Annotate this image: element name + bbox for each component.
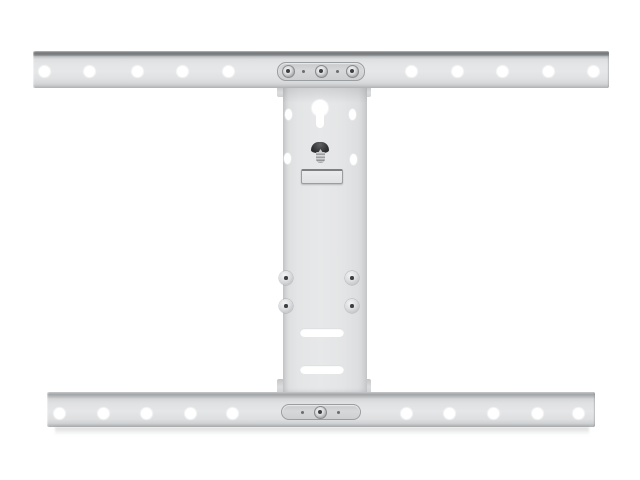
top-clamp-screw — [346, 65, 359, 78]
bottom-clamp-pin — [337, 411, 340, 414]
bottom-rail-hole — [185, 408, 196, 419]
top-clamp-pin — [302, 70, 305, 73]
top-clamp-screw — [282, 65, 295, 78]
top-rail-hole — [406, 66, 417, 77]
top-rail-hole — [497, 66, 508, 77]
top-rail-hole — [84, 66, 95, 77]
top-clamp-pin — [336, 70, 339, 73]
keyhole-slot-stem — [316, 112, 324, 128]
wall-plate — [283, 87, 367, 393]
plate-oval-hole — [350, 154, 357, 165]
bottom-rail-hole — [444, 408, 455, 419]
bottom-clamp-screw — [314, 406, 327, 419]
plate-rivet — [345, 271, 359, 285]
latch-plate — [301, 169, 343, 184]
top-rail-hole — [132, 66, 143, 77]
locking-bolt-shaft — [316, 152, 325, 163]
bottom-rail-hole — [401, 408, 412, 419]
bottom-rail-hole — [227, 408, 238, 419]
bottom-rail-hole — [141, 408, 152, 419]
bottom-rail-hole — [532, 408, 543, 419]
top-rail-hole — [543, 66, 554, 77]
product-photo-tv-wall-mount — [0, 0, 640, 480]
plate-rivet — [345, 299, 359, 313]
bottom-clamp-pin — [301, 411, 304, 414]
plate-rivet — [279, 299, 293, 313]
plate-adjustment-slot — [300, 365, 344, 374]
bottom-rail-hole — [573, 408, 584, 419]
top-rail-hole — [177, 66, 188, 77]
plate-oval-hole — [284, 153, 291, 164]
top-rail-hole — [223, 66, 234, 77]
plate-rivet — [279, 271, 293, 285]
drop-shadow — [55, 427, 589, 435]
top-rail-hole — [452, 66, 463, 77]
plate-oval-hole — [349, 109, 356, 120]
top-rail-hole — [39, 66, 50, 77]
bottom-rail-hole — [54, 408, 65, 419]
top-rail-hole — [588, 66, 599, 77]
bottom-rail-hole — [488, 408, 499, 419]
plate-adjustment-slot — [300, 328, 344, 337]
plate-oval-hole — [285, 109, 292, 120]
top-clamp-screw — [315, 65, 328, 78]
bottom-rail-hole — [98, 408, 109, 419]
